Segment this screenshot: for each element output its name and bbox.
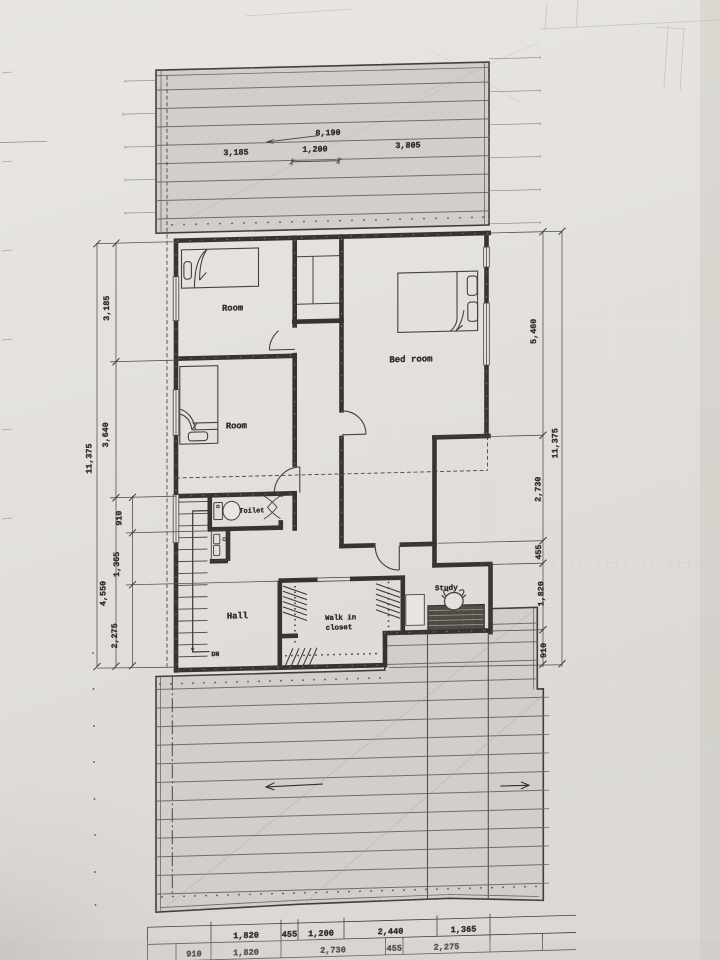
- svg-text:1,365: 1,365: [451, 925, 477, 936]
- svg-text:910: 910: [115, 510, 125, 525]
- svg-text:1,200: 1,200: [308, 929, 334, 940]
- svg-text:8,190: 8,190: [315, 128, 340, 139]
- svg-text:3,185: 3,185: [223, 148, 248, 159]
- svg-text:Room: Room: [222, 303, 243, 314]
- svg-text:Hall: Hall: [227, 611, 248, 622]
- svg-text:2,440: 2,440: [378, 927, 404, 938]
- svg-text:Walk in: Walk in: [325, 614, 356, 623]
- svg-text:closet: closet: [326, 624, 353, 633]
- svg-text:1,200: 1,200: [302, 144, 327, 155]
- svg-text:11,375: 11,375: [85, 443, 95, 473]
- svg-text:Toilet: Toilet: [239, 507, 264, 516]
- svg-text:4,550: 4,550: [99, 581, 109, 606]
- svg-text:DN: DN: [211, 651, 219, 658]
- svg-text:Room: Room: [226, 421, 247, 432]
- svg-text:1,820: 1,820: [536, 581, 546, 606]
- svg-text:3,185: 3,185: [102, 295, 112, 320]
- svg-text:1,365: 1,365: [112, 552, 122, 577]
- svg-text:Bed room: Bed room: [389, 354, 433, 365]
- svg-text:3,805: 3,805: [395, 140, 420, 151]
- svg-text:1,820: 1,820: [233, 931, 259, 942]
- svg-text:455: 455: [282, 930, 297, 940]
- svg-text:3,640: 3,640: [101, 422, 111, 447]
- svg-text:2,275: 2,275: [110, 623, 120, 648]
